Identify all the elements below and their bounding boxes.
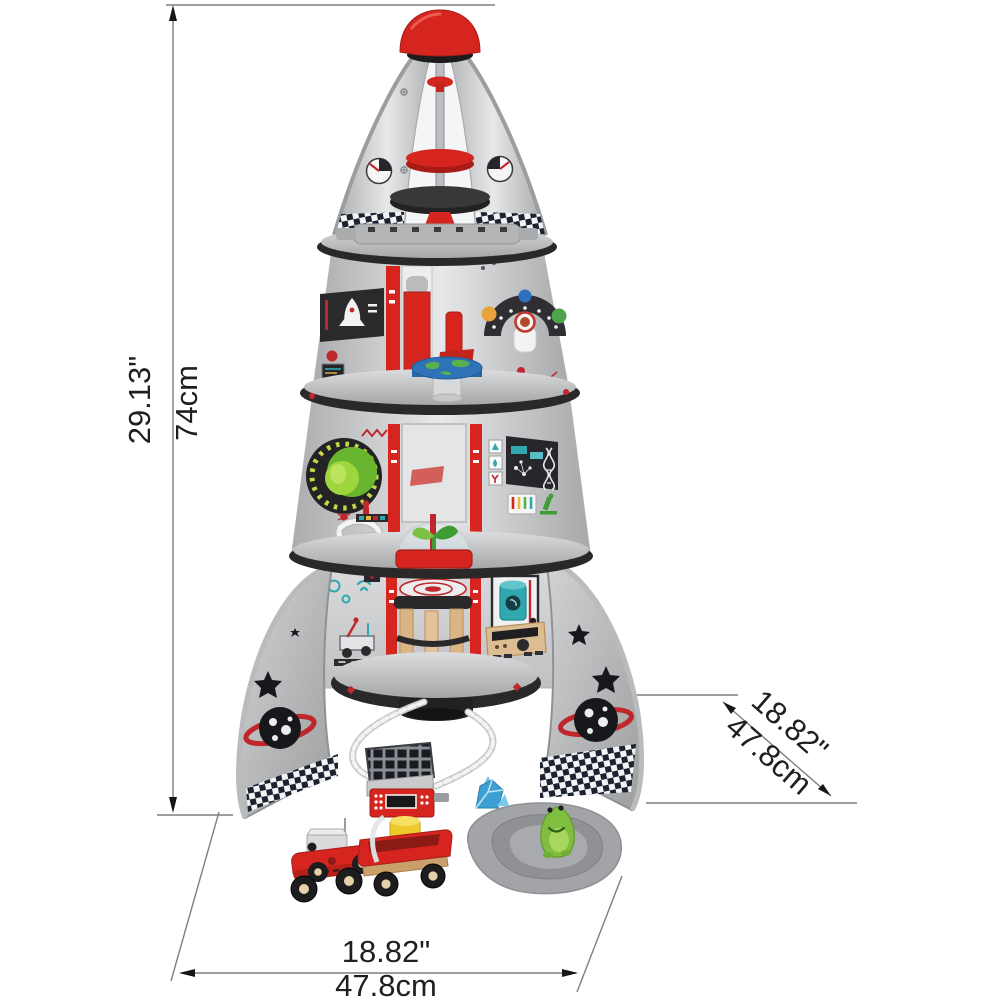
height-inches-label: 29.13"	[122, 356, 157, 445]
rocket-illustration	[239, 10, 642, 818]
planet-icon	[482, 307, 497, 322]
arrow-right-icon	[562, 969, 578, 977]
base-deck	[331, 652, 541, 721]
dome-cap	[400, 10, 480, 63]
height-cm-label: 74cm	[169, 365, 204, 441]
astronaut-decal	[514, 313, 536, 353]
red-pillar	[470, 424, 482, 532]
planet-icon	[552, 309, 567, 324]
capsule-station	[486, 576, 546, 659]
width-cm-label: 47.8cm	[335, 968, 437, 1000]
width-inches-label: 18.82"	[342, 934, 431, 969]
cabin-door	[386, 266, 432, 372]
deck-1	[317, 224, 557, 266]
right-fin	[540, 558, 642, 810]
test-tube-icon	[508, 494, 536, 514]
trailer	[358, 816, 452, 896]
red-pillar	[470, 570, 481, 666]
solar-charger	[366, 743, 449, 817]
product-dimension-diagram: 29.13" 74cm 18.82" 47.8cm 18.82" 47.8cm	[0, 0, 1000, 1000]
rocket-diagram-svg: 29.13" 74cm 18.82" 47.8cm 18.82" 47.8cm	[0, 0, 1000, 1000]
arrow-left-icon	[179, 969, 195, 977]
arrow-down-icon	[169, 797, 177, 813]
nose-cone	[334, 10, 546, 235]
red-pillar	[386, 570, 397, 666]
left-fin	[239, 566, 338, 818]
rocket-poster	[320, 288, 384, 342]
red-button-decal	[327, 351, 338, 362]
planet-icon	[519, 290, 532, 303]
crystal	[476, 776, 509, 808]
dna-panel	[506, 436, 558, 490]
red-pillar	[388, 424, 400, 532]
lab-icons	[489, 440, 502, 485]
arrow-up-icon	[169, 5, 177, 21]
